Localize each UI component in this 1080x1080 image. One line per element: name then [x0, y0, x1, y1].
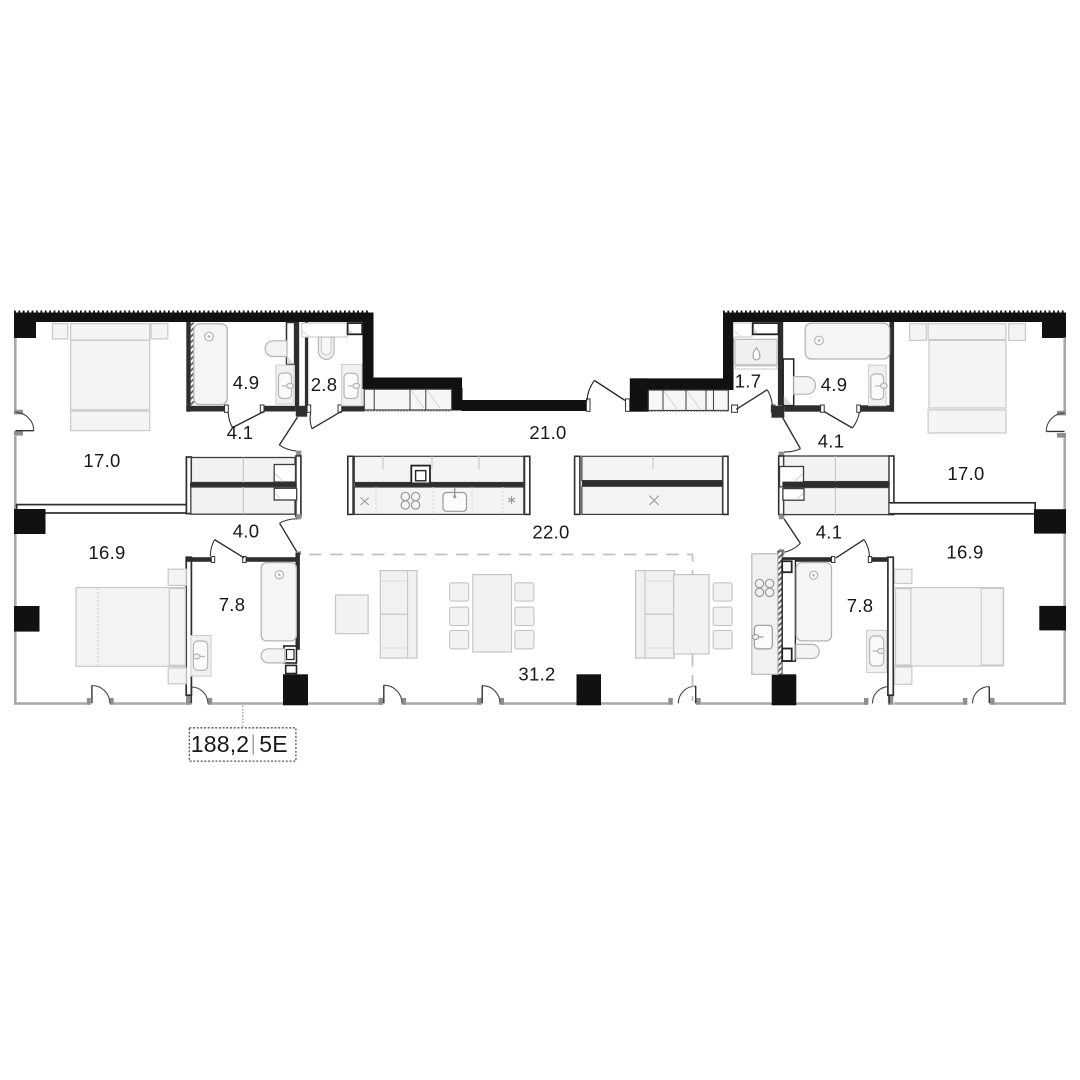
svg-text:4.9: 4.9 [821, 374, 848, 395]
svg-text:16.9: 16.9 [88, 542, 125, 563]
svg-text:188,2: 188,2 [191, 731, 250, 757]
svg-text:17.0: 17.0 [947, 463, 984, 484]
svg-text:4.1: 4.1 [816, 522, 843, 543]
svg-text:2.8: 2.8 [311, 374, 338, 395]
svg-text:31.2: 31.2 [518, 664, 555, 685]
svg-text:4.1: 4.1 [818, 431, 845, 452]
svg-text:1.7: 1.7 [735, 371, 762, 392]
svg-text:5E: 5E [259, 731, 288, 757]
svg-text:4.9: 4.9 [233, 372, 260, 393]
svg-text:7.8: 7.8 [219, 594, 246, 615]
svg-text:4.0: 4.0 [233, 521, 260, 542]
svg-text:22.0: 22.0 [532, 522, 569, 543]
svg-text:16.9: 16.9 [946, 542, 983, 563]
svg-text:21.0: 21.0 [529, 422, 566, 443]
svg-text:17.0: 17.0 [83, 450, 120, 471]
svg-text:4.1: 4.1 [227, 422, 254, 443]
svg-text:7.8: 7.8 [847, 595, 874, 616]
